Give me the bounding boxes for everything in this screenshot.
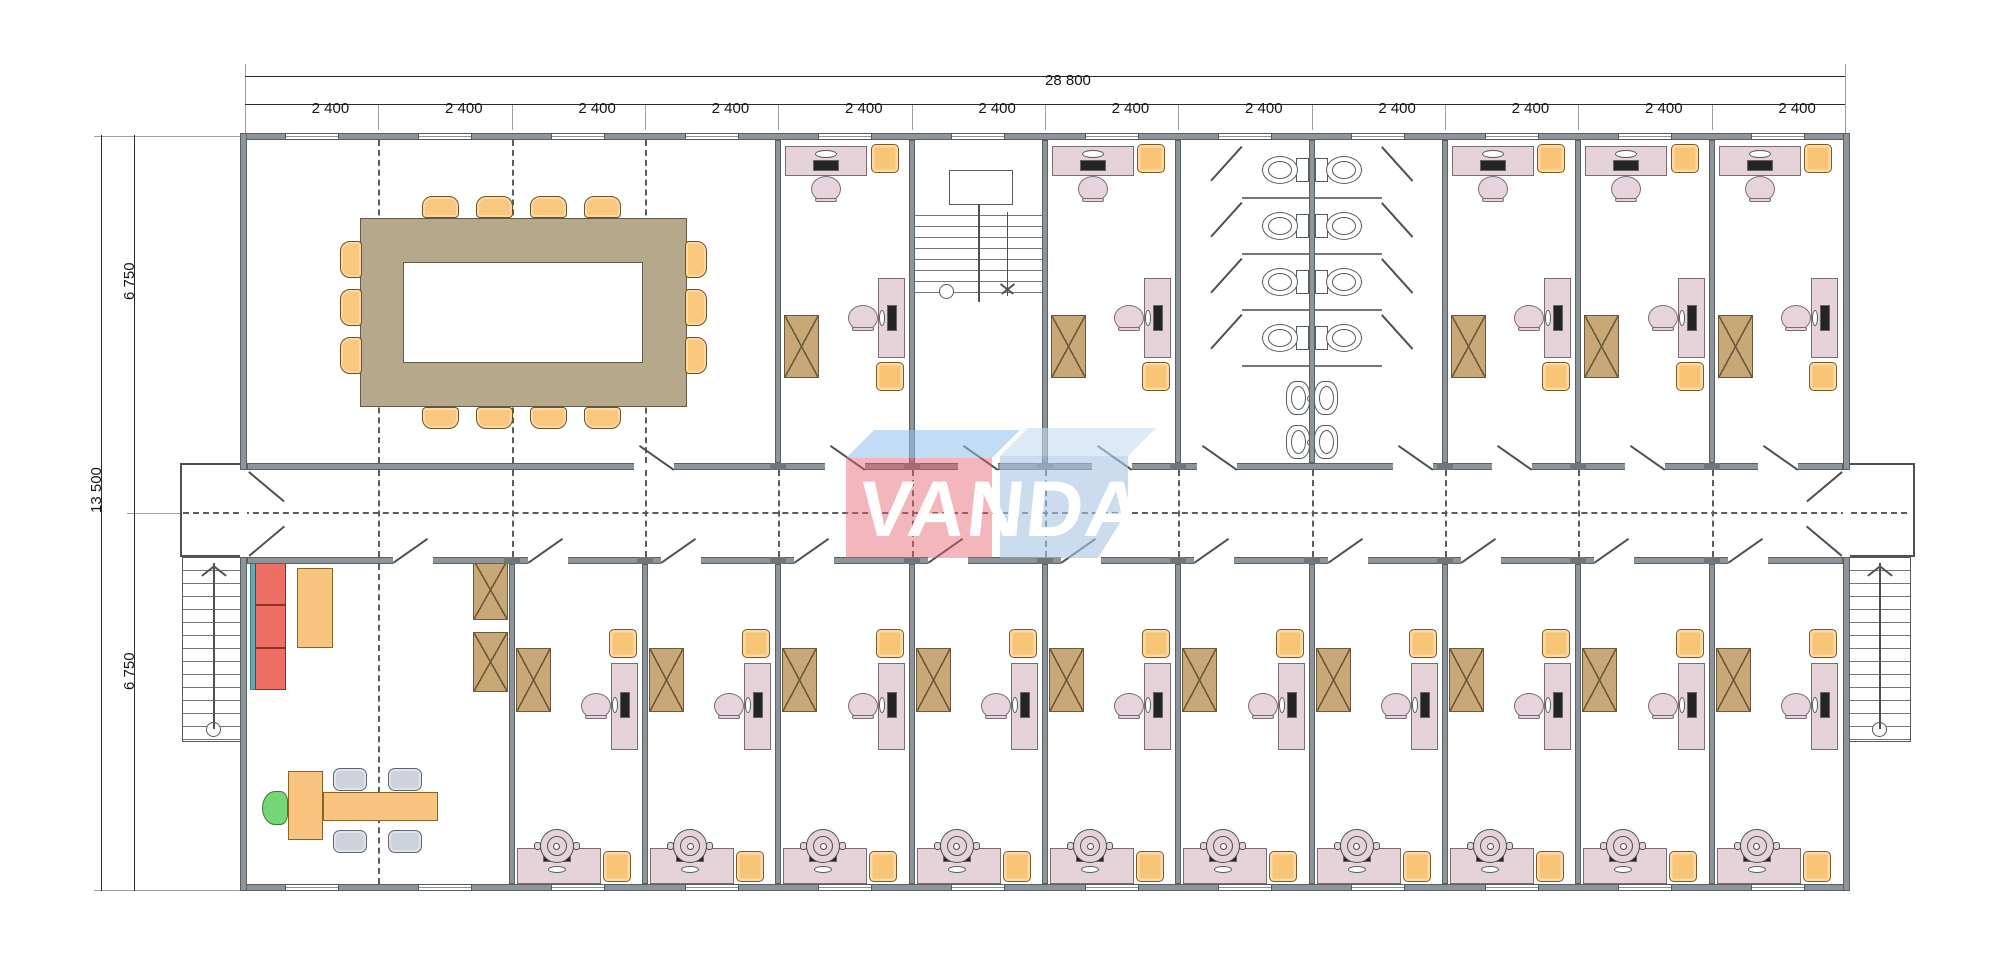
desk-lamp bbox=[1812, 697, 1818, 713]
guest-chair bbox=[1671, 144, 1699, 173]
computer-monitor bbox=[887, 692, 897, 718]
wall-partition-top-band bbox=[1575, 140, 1581, 463]
desk-lamp bbox=[1082, 150, 1104, 158]
kettle-pot-handle bbox=[706, 842, 713, 850]
stair-circle bbox=[939, 284, 954, 299]
guest-chair bbox=[1537, 144, 1565, 173]
guest-chair bbox=[1669, 851, 1697, 882]
wall-partition-top-band bbox=[1042, 140, 1048, 463]
window bbox=[418, 884, 472, 891]
sofa-seam bbox=[256, 604, 285, 606]
floorplan-canvas: 28 8002 4002 4002 4002 4002 4002 4002 40… bbox=[0, 0, 2000, 980]
toilet-seat bbox=[1268, 217, 1292, 235]
dimension-ext-line bbox=[1712, 104, 1713, 130]
kettle-pot-knob bbox=[1620, 843, 1627, 850]
conference-chair bbox=[530, 407, 567, 429]
storage-cabinet bbox=[473, 560, 508, 620]
stall-partition bbox=[1242, 253, 1309, 256]
toilet-seat bbox=[1332, 329, 1356, 347]
entry-door-gap-left bbox=[240, 470, 247, 557]
computer-monitor bbox=[1687, 692, 1697, 718]
guest-chair bbox=[1542, 362, 1570, 391]
sink-inner bbox=[1291, 386, 1306, 410]
guest-chair bbox=[1536, 851, 1564, 882]
dimension-ext-line bbox=[1312, 104, 1313, 130]
desk-lamp bbox=[1749, 150, 1771, 158]
wall-exterior-left-lower bbox=[240, 557, 247, 891]
guest-chair bbox=[869, 851, 897, 882]
window bbox=[1618, 884, 1672, 891]
storage-cabinet bbox=[1182, 648, 1217, 712]
storage-cabinet bbox=[649, 648, 684, 712]
guest-chair bbox=[736, 851, 764, 882]
wall-junction-post bbox=[1037, 557, 1053, 564]
module-gridline bbox=[378, 564, 380, 884]
desk-mouse bbox=[1748, 866, 1766, 873]
logo-right-cube-front bbox=[846, 428, 1158, 560]
computer-monitor bbox=[887, 305, 897, 331]
guest-chair bbox=[1809, 362, 1837, 391]
window bbox=[1485, 133, 1539, 140]
wall-junction-post bbox=[904, 463, 920, 470]
computer-monitor bbox=[620, 692, 630, 718]
stair-arrow-line bbox=[1007, 212, 1009, 296]
wall-partition-bottom-band bbox=[1309, 564, 1315, 884]
guest-chair bbox=[1403, 851, 1431, 882]
dimension-ext-line bbox=[245, 104, 246, 130]
office-chair-back bbox=[1482, 198, 1504, 202]
window bbox=[951, 884, 1005, 891]
dimension-ext-line bbox=[1578, 104, 1579, 130]
desk-lamp bbox=[1412, 697, 1418, 713]
guest-chair bbox=[871, 144, 899, 173]
computer-monitor bbox=[1553, 305, 1563, 331]
meeting-table bbox=[323, 792, 438, 821]
dimension-ext-line bbox=[1178, 104, 1179, 130]
kettle-pot-handle bbox=[973, 842, 980, 850]
storage-cabinet bbox=[1718, 315, 1753, 378]
wall-partition-top-band bbox=[1442, 140, 1448, 463]
conference-chair bbox=[340, 337, 362, 374]
desk-mouse bbox=[548, 866, 566, 873]
window bbox=[1618, 133, 1672, 140]
stall-door-leaf bbox=[1210, 146, 1242, 181]
wall-partition-top-band bbox=[909, 140, 915, 463]
desk-mouse bbox=[681, 866, 699, 873]
guest-chair bbox=[876, 629, 904, 658]
entry-door-gap-right bbox=[1843, 470, 1850, 557]
dimension-ext-line bbox=[1845, 104, 1846, 130]
computer-monitor bbox=[1687, 305, 1697, 331]
storage-cabinet bbox=[1449, 648, 1484, 712]
window bbox=[418, 133, 472, 140]
stair-landing bbox=[949, 170, 1013, 205]
window bbox=[551, 133, 605, 140]
entry-door-leaf bbox=[1806, 526, 1842, 557]
guest-chair bbox=[876, 362, 904, 391]
computer-monitor bbox=[1153, 692, 1163, 718]
storage-cabinet bbox=[1582, 648, 1617, 712]
wall-junction-post bbox=[904, 557, 920, 564]
window bbox=[951, 133, 1005, 140]
desk-mouse bbox=[1481, 866, 1499, 873]
visitor-chair bbox=[333, 830, 367, 853]
window bbox=[685, 884, 739, 891]
office-chair-back bbox=[1518, 327, 1540, 331]
window bbox=[685, 133, 739, 140]
stall-door-leaf bbox=[1210, 314, 1242, 349]
window bbox=[1218, 133, 1272, 140]
desk-lamp bbox=[879, 310, 885, 326]
wall-junction-post bbox=[1704, 463, 1720, 470]
office-chair-back bbox=[1785, 327, 1807, 331]
guest-chair bbox=[1809, 629, 1837, 658]
window bbox=[1351, 133, 1405, 140]
stall-door-leaf bbox=[1381, 314, 1413, 349]
office-chair-back bbox=[1749, 198, 1771, 202]
stall-door-leaf bbox=[1381, 258, 1413, 293]
corridor-centerline bbox=[183, 512, 1907, 514]
wall-partition-bottom-band bbox=[1175, 564, 1181, 884]
storage-cabinet bbox=[782, 648, 817, 712]
dimension-ext-line bbox=[127, 513, 183, 514]
kettle-pot-knob bbox=[1220, 843, 1227, 850]
kettle-pot-handle bbox=[667, 842, 674, 850]
wall-partition-bottom-band bbox=[1575, 564, 1581, 884]
conference-table-opening bbox=[403, 262, 643, 363]
desk-mouse bbox=[1081, 866, 1099, 873]
window bbox=[285, 884, 339, 891]
stall-partition bbox=[1242, 197, 1309, 200]
wall-partition-top-band bbox=[775, 140, 781, 463]
dimension-ext-line bbox=[645, 104, 646, 130]
computer-monitor bbox=[753, 692, 763, 718]
logo-right-cube-top bbox=[846, 428, 1158, 560]
computer-monitor bbox=[1020, 692, 1030, 718]
wall-washroom-center bbox=[1309, 140, 1315, 463]
dimension-ext-line bbox=[94, 136, 240, 137]
stall-partition bbox=[1315, 253, 1382, 256]
office-chair-back bbox=[1118, 327, 1140, 331]
kettle-pot-handle bbox=[1734, 842, 1741, 850]
logo-left-cube-front bbox=[846, 428, 1158, 560]
wall-partition-bottom-band bbox=[1042, 564, 1048, 884]
logo-watermark: VANDA bbox=[846, 428, 1158, 560]
office-chair-back bbox=[1385, 715, 1407, 719]
dimension-line-total-height bbox=[101, 135, 102, 891]
office-chair-back bbox=[852, 715, 874, 719]
office-chair-back bbox=[985, 715, 1007, 719]
wall-exterior-bottom bbox=[240, 884, 1850, 891]
stall-door-leaf bbox=[1210, 258, 1242, 293]
toilet-seat bbox=[1268, 273, 1292, 291]
stall-door-leaf bbox=[1381, 146, 1413, 181]
stall-partition bbox=[1242, 309, 1309, 312]
storage-cabinet bbox=[1051, 315, 1086, 378]
office-chair-back bbox=[815, 198, 837, 202]
wall-junction-post bbox=[1570, 463, 1586, 470]
stall-partition bbox=[1242, 365, 1309, 368]
kettle-pot-handle bbox=[1639, 842, 1646, 850]
computer-monitor bbox=[1553, 692, 1563, 718]
wall-partition-bottom-band bbox=[509, 564, 515, 884]
guest-chair bbox=[1803, 851, 1831, 882]
wall-junction-post bbox=[770, 557, 786, 564]
logo-wordmark: VANDA bbox=[843, 460, 1161, 558]
desk-lamp bbox=[1679, 310, 1685, 326]
desk-lamp bbox=[1012, 697, 1018, 713]
computer-monitor bbox=[1153, 305, 1163, 331]
stairs-external-left-rail bbox=[213, 563, 215, 729]
kettle-pot-handle bbox=[534, 842, 541, 850]
guest-chair bbox=[1269, 851, 1297, 882]
stair-rail bbox=[978, 205, 981, 302]
wall-exterior-right-upper bbox=[1843, 133, 1850, 470]
toilet-seat bbox=[1268, 329, 1292, 347]
office-chair-back bbox=[1252, 715, 1274, 719]
storage-cabinet bbox=[1316, 648, 1351, 712]
window bbox=[285, 133, 339, 140]
wall-junction-post bbox=[1704, 557, 1720, 564]
window bbox=[1085, 133, 1139, 140]
computer-monitor bbox=[1820, 692, 1830, 718]
entry-door-leaf bbox=[1806, 471, 1842, 502]
wall-exterior-left-upper bbox=[240, 133, 247, 470]
conference-chair bbox=[422, 407, 459, 429]
computer-monitor bbox=[1480, 160, 1506, 171]
computer-monitor bbox=[1747, 160, 1773, 171]
entry-door-leaf bbox=[249, 471, 285, 502]
toilet-seat bbox=[1268, 161, 1292, 179]
guest-chair bbox=[1003, 851, 1031, 882]
conference-chair bbox=[476, 196, 513, 218]
guest-chair bbox=[1804, 144, 1832, 173]
storage-cabinet bbox=[916, 648, 951, 712]
dimension-ext-line bbox=[778, 104, 779, 130]
kettle-pot-knob bbox=[820, 843, 827, 850]
window bbox=[551, 884, 605, 891]
desk-lamp bbox=[1679, 697, 1685, 713]
window bbox=[1085, 884, 1139, 891]
wall-partition-top-band bbox=[1175, 140, 1181, 463]
computer-monitor bbox=[1420, 692, 1430, 718]
kettle-pot-knob bbox=[1087, 843, 1094, 850]
kettle-pot-knob bbox=[953, 843, 960, 850]
logo-left-cube-top bbox=[846, 428, 1158, 560]
computer-monitor bbox=[1613, 160, 1639, 171]
kettle-pot-knob bbox=[1487, 843, 1494, 850]
computer-monitor bbox=[1820, 305, 1830, 331]
guest-chair bbox=[1409, 629, 1437, 658]
kettle-pot-knob bbox=[1753, 843, 1760, 850]
conference-chair bbox=[685, 337, 707, 374]
wall-junction-post bbox=[1304, 557, 1320, 564]
desk-lamp bbox=[612, 697, 618, 713]
conference-chair bbox=[340, 241, 362, 278]
sink-inner bbox=[1319, 430, 1334, 454]
kettle-pot-handle bbox=[1467, 842, 1474, 850]
executive-desk bbox=[288, 771, 323, 840]
dimension-line-half-heights bbox=[134, 135, 135, 891]
wall-partition-bottom-band bbox=[642, 564, 648, 884]
conference-chair bbox=[685, 289, 707, 326]
wall-junction-post bbox=[1170, 463, 1186, 470]
stall-door-leaf bbox=[1210, 202, 1242, 237]
entrance-vestibule-right bbox=[1848, 463, 1915, 557]
office-chair-back bbox=[718, 715, 740, 719]
kettle-pot-handle bbox=[1239, 842, 1246, 850]
wall-junction-post bbox=[1437, 557, 1453, 564]
office-chair-back bbox=[852, 327, 874, 331]
kettle-pot-knob bbox=[1353, 843, 1360, 850]
desk-mouse bbox=[1348, 866, 1366, 873]
computer-monitor bbox=[1287, 692, 1297, 718]
visitor-chair bbox=[388, 768, 422, 791]
office-chair-back bbox=[1652, 715, 1674, 719]
kettle-pot-handle bbox=[1600, 842, 1607, 850]
computer-monitor bbox=[1080, 160, 1106, 171]
guest-chair bbox=[1137, 144, 1165, 173]
window bbox=[818, 133, 872, 140]
kettle-pot-handle bbox=[1067, 842, 1074, 850]
dimension-ext-line bbox=[378, 104, 379, 130]
stall-door-leaf bbox=[1381, 202, 1413, 237]
storage-cabinet bbox=[784, 315, 819, 378]
guest-chair bbox=[1136, 851, 1164, 882]
guest-chair bbox=[742, 629, 770, 658]
guest-chair bbox=[1542, 629, 1570, 658]
kettle-pot-handle bbox=[800, 842, 807, 850]
guest-chair bbox=[1142, 362, 1170, 391]
storage-cabinet bbox=[1049, 648, 1084, 712]
conference-chair bbox=[584, 196, 621, 218]
window bbox=[1218, 884, 1272, 891]
executive-chair bbox=[262, 791, 288, 825]
office-chair-back bbox=[1615, 198, 1637, 202]
storage-cabinet bbox=[1584, 315, 1619, 378]
conference-chair bbox=[340, 289, 362, 326]
wall-junction-post bbox=[504, 557, 520, 564]
wall-junction-post bbox=[1437, 463, 1453, 470]
guest-chair bbox=[1009, 629, 1037, 658]
sofa-seam bbox=[256, 647, 285, 649]
desk-mouse bbox=[948, 866, 966, 873]
wall-junction-post bbox=[1170, 557, 1186, 564]
wall-junction-post bbox=[770, 463, 786, 470]
wall-partition-top-band bbox=[1709, 140, 1715, 463]
entry-door-leaf bbox=[249, 526, 285, 557]
conference-chair bbox=[584, 407, 621, 429]
storage-cabinet bbox=[516, 648, 551, 712]
kettle-pot-knob bbox=[687, 843, 694, 850]
visitor-chair bbox=[333, 768, 367, 791]
guest-chair bbox=[603, 851, 631, 882]
sofa bbox=[255, 562, 286, 690]
storage-cabinet bbox=[1716, 648, 1751, 712]
wall-partition-bottom-band bbox=[1709, 564, 1715, 884]
wall-exterior-top bbox=[240, 133, 1850, 140]
desk-lamp bbox=[1279, 697, 1285, 713]
window bbox=[1751, 133, 1805, 140]
office-chair-back bbox=[1082, 198, 1104, 202]
guest-chair bbox=[1142, 629, 1170, 658]
desk-lamp bbox=[1812, 310, 1818, 326]
kettle-pot-handle bbox=[1506, 842, 1513, 850]
kettle-pot-handle bbox=[1200, 842, 1207, 850]
window bbox=[1485, 884, 1539, 891]
desk-lamp bbox=[1482, 150, 1504, 158]
guest-chair bbox=[609, 629, 637, 658]
dimension-ext-line bbox=[94, 890, 240, 891]
kettle-pot-handle bbox=[1373, 842, 1380, 850]
wall-partition-bottom-band bbox=[909, 564, 915, 884]
storage-cabinet bbox=[1451, 315, 1486, 378]
toilet-seat bbox=[1332, 217, 1356, 235]
stall-partition bbox=[1315, 309, 1382, 312]
kettle-pot-handle bbox=[839, 842, 846, 850]
wall-junction-post bbox=[1570, 557, 1586, 564]
wall-partition-bottom-band bbox=[1442, 564, 1448, 884]
stall-partition bbox=[1315, 365, 1382, 368]
guest-chair bbox=[1676, 362, 1704, 391]
kettle-pot-handle bbox=[934, 842, 941, 850]
coffee-table bbox=[297, 568, 333, 648]
window bbox=[1751, 884, 1805, 891]
office-chair-back bbox=[1652, 327, 1674, 331]
dimension-ext-line bbox=[512, 104, 513, 130]
dimension-ext-line bbox=[1445, 104, 1446, 130]
dimension-ext-line bbox=[912, 104, 913, 130]
kettle-pot-handle bbox=[573, 842, 580, 850]
stall-partition bbox=[1315, 197, 1382, 200]
computer-monitor bbox=[813, 160, 839, 171]
sink-inner bbox=[1291, 430, 1306, 454]
conference-chair bbox=[422, 196, 459, 218]
wall-junction-post bbox=[637, 557, 653, 564]
window bbox=[1351, 884, 1405, 891]
wall-exterior-right-lower bbox=[1843, 557, 1850, 891]
office-chair-back bbox=[1518, 715, 1540, 719]
office-chair-back bbox=[1118, 715, 1140, 719]
visitor-chair bbox=[388, 830, 422, 853]
toilet-seat bbox=[1332, 273, 1356, 291]
kettle-pot-handle bbox=[1334, 842, 1341, 850]
kettle-pot-handle bbox=[1106, 842, 1113, 850]
wall-junction-post bbox=[1037, 463, 1053, 470]
kettle-pot-knob bbox=[553, 843, 560, 850]
window bbox=[818, 884, 872, 891]
stairs-external-right-rail bbox=[1879, 563, 1881, 729]
conference-chair bbox=[530, 196, 567, 218]
kettle-pot-handle bbox=[1773, 842, 1780, 850]
office-chair-back bbox=[1785, 715, 1807, 719]
dimension-line-modules bbox=[245, 104, 1845, 105]
entrance-vestibule-left bbox=[180, 463, 247, 557]
conference-chair bbox=[685, 241, 707, 278]
wall-partition-bottom-band bbox=[775, 564, 781, 884]
conference-chair bbox=[476, 407, 513, 429]
toilet-seat bbox=[1332, 161, 1356, 179]
dimension-ext-line bbox=[1045, 104, 1046, 130]
desk-lamp bbox=[879, 697, 885, 713]
sink-inner bbox=[1319, 386, 1334, 410]
storage-cabinet bbox=[473, 632, 508, 692]
guest-chair bbox=[1276, 629, 1304, 658]
guest-chair bbox=[1676, 629, 1704, 658]
office-chair-back bbox=[585, 715, 607, 719]
